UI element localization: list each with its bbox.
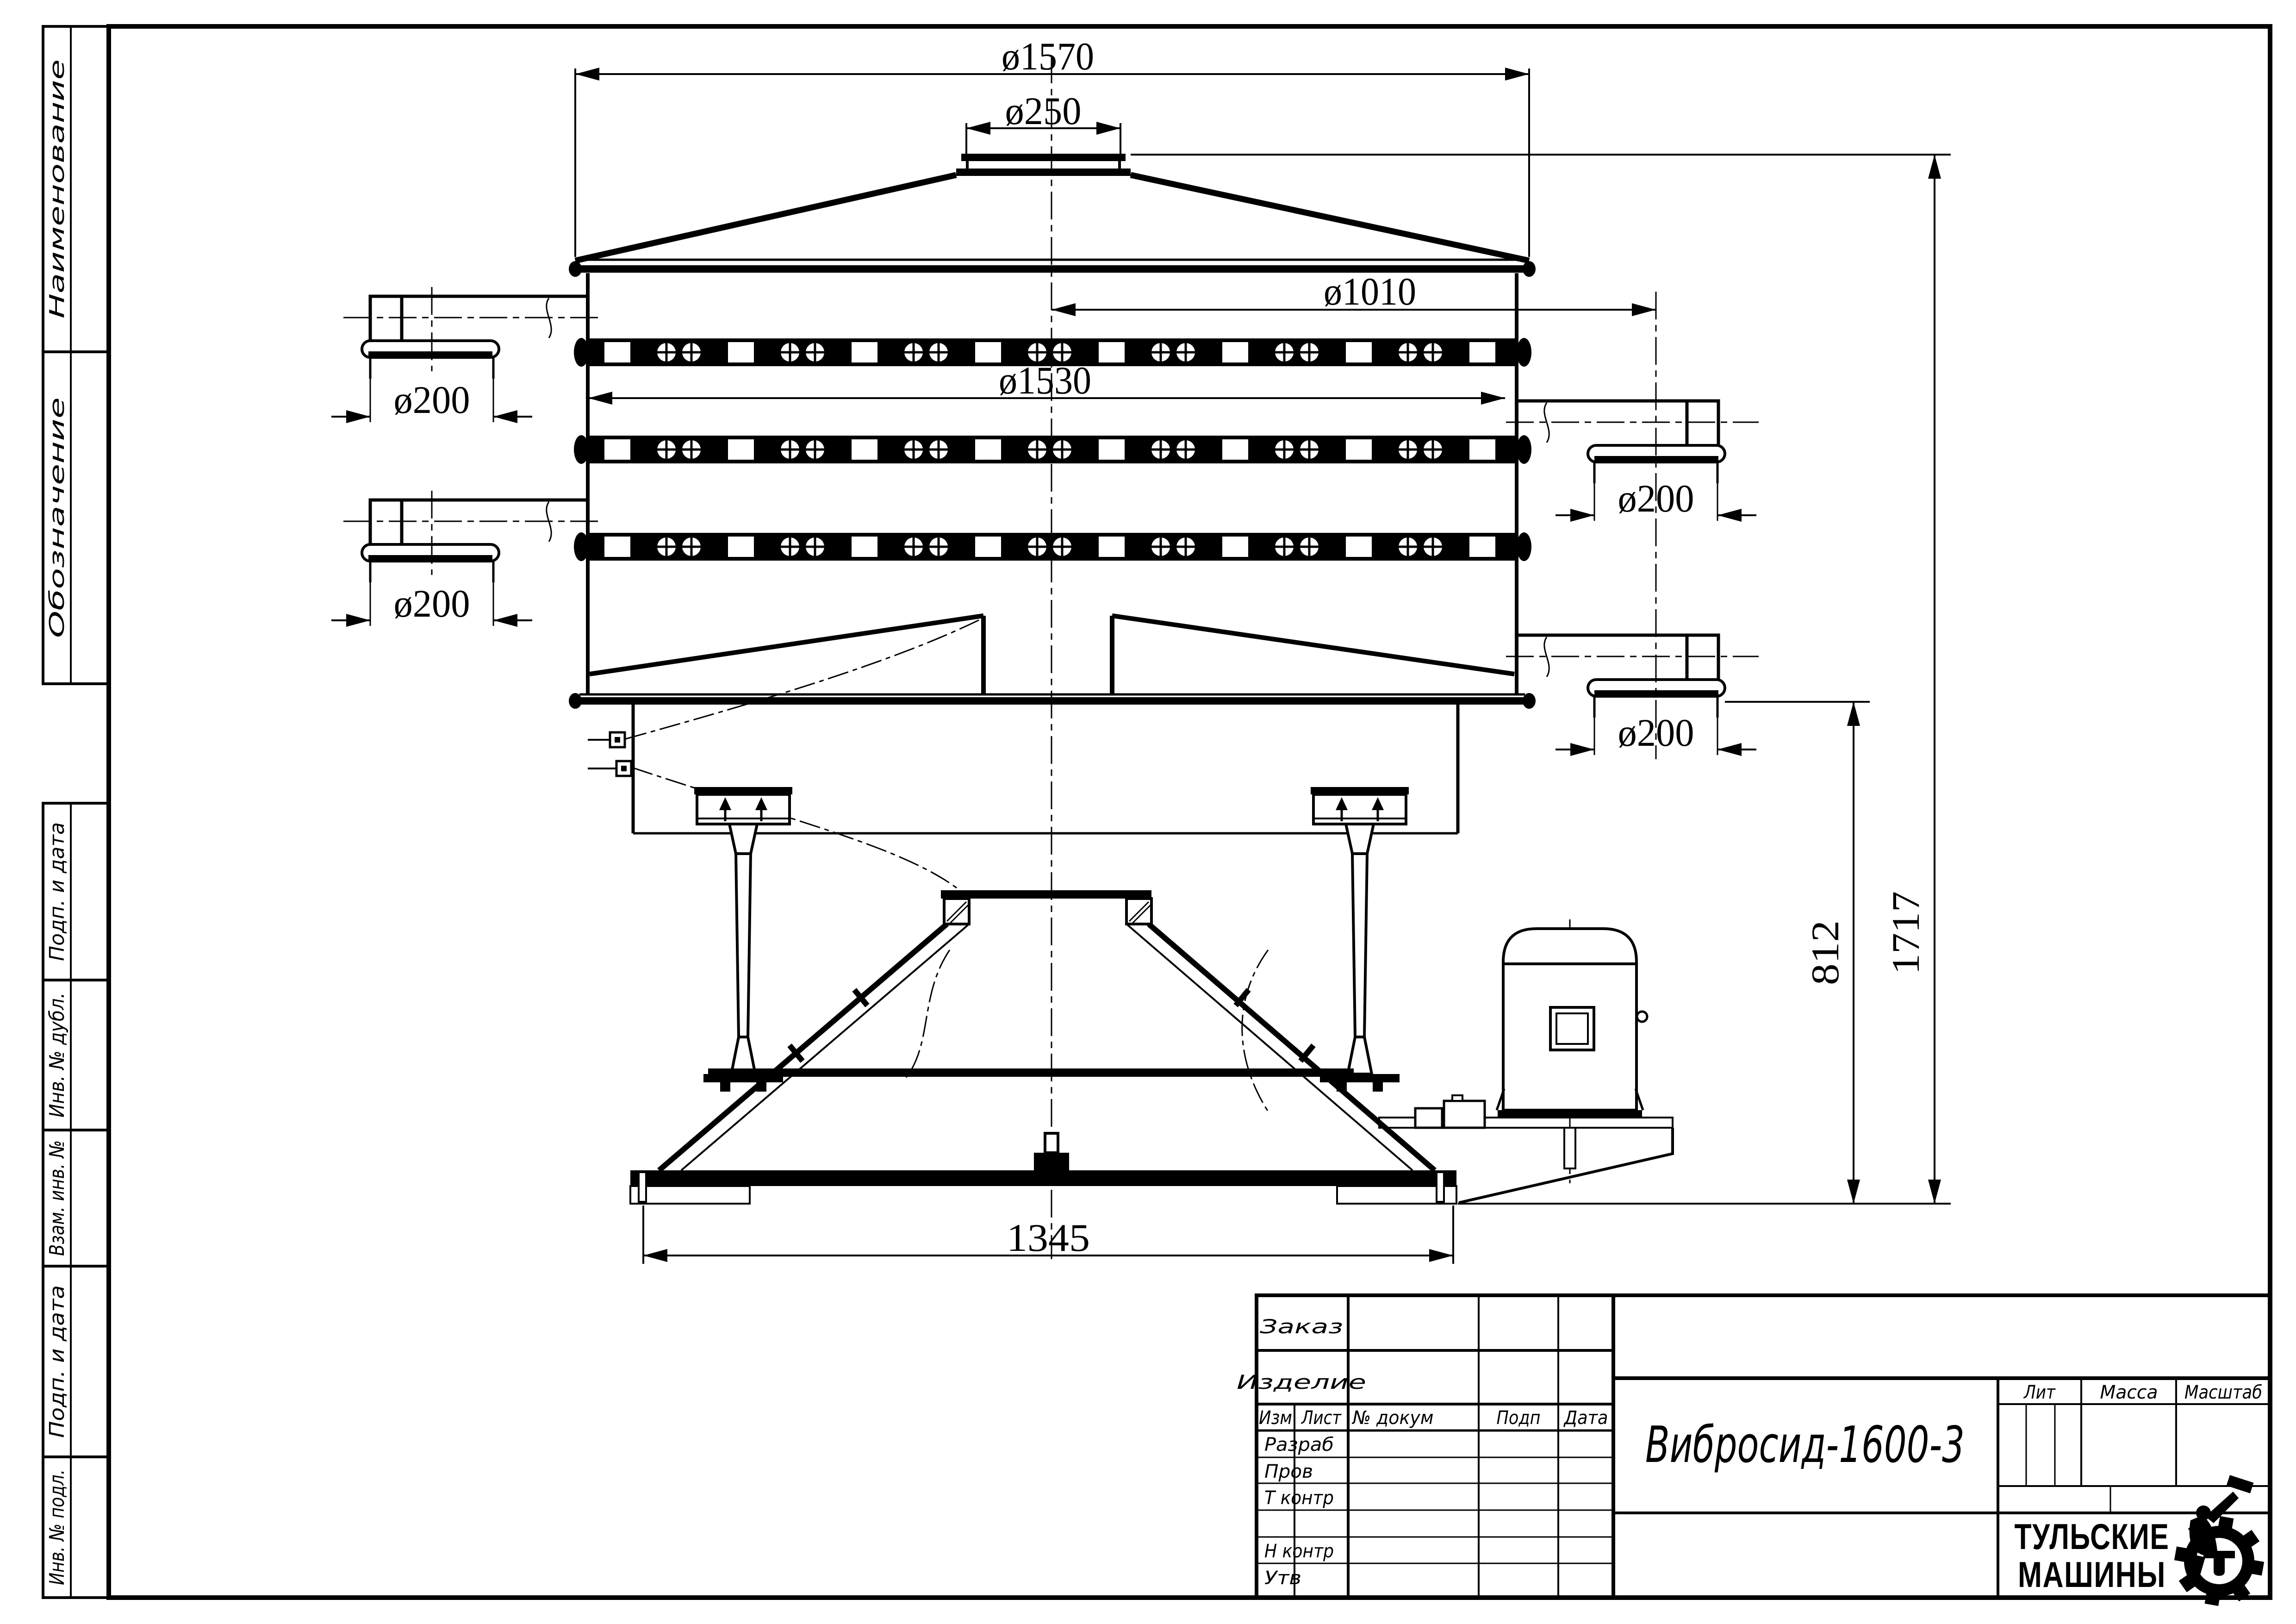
title-row-prov: Пров [1264,1461,1313,1482]
clamp-band-2 [574,435,1531,464]
title-order-label: Заказ [1260,1315,1343,1338]
dim-label-200-left-upper: ø200 [394,378,470,422]
base-ring [630,1170,1456,1204]
dimension-inlet-diameter: ø250 [966,89,1120,154]
inlet-neck [956,154,1131,176]
title-scale-label: Масштаб [2184,1382,2262,1403]
spring-leg-left [703,824,783,1092]
clamp-band-3 [574,532,1531,561]
title-designation: Вибросид-1600-3 [1645,1416,1965,1474]
dim-label-200-right-lower: ø200 [1618,711,1694,755]
dim-label-1570: ø1570 [1002,35,1094,78]
drawing-sheet: Наименование Обозначение Подп. и дата Ин… [0,0,2296,1624]
margin-label-name: Наименование [45,59,69,319]
dimension-base-width: 1345 [643,1206,1453,1264]
sheet-frame [109,26,2270,1598]
margin-label-vzam-inv: Взам. инв. № [45,1140,69,1256]
gear-emblem [2174,1475,2264,1606]
margin-label-inv-dubl: Инв. № дубл. [45,993,69,1118]
title-col-doc: № докум [1352,1407,1434,1429]
company-name-line2: МАШИНЫ [2018,1554,2166,1595]
drawing-canvas: Наименование Обозначение Подп. и дата Ин… [0,0,2296,1624]
company-name-line1: ТУЛЬСКИЕ [2015,1516,2170,1557]
title-row-razrab: Разраб [1264,1434,1334,1455]
dim-label-812: 812 [1804,920,1847,985]
spring-bracket-left [694,787,792,824]
dimension-deck-diameter: ø1010 [1052,270,1656,316]
machine-view [331,56,1759,1259]
margin-label-podp-data-2: Подп. и дата [45,1285,69,1438]
cross-bar [708,1068,1354,1077]
title-block: Заказ Изделие Изм Лист № докум Подп Дата… [1237,1295,2270,1606]
wall-fittings [588,732,631,776]
margin-label-designation: Обозначение [45,397,69,638]
margin-column-top: Наименование Обозначение [43,26,109,684]
company-logo: ТУЛЬСКИЕ МАШИНЫ [2015,1475,2265,1606]
title-product-label: Изделие [1237,1371,1366,1393]
title-row-nkontr: Н контр [1264,1541,1334,1562]
discharge-cone [659,890,1435,1170]
dim-label-1530: ø1530 [999,359,1091,402]
margin-label-podp-data-1: Подп. и дата [45,822,69,961]
title-col-data: Дата [1563,1407,1608,1429]
dimension-top-diameter: ø1570 [575,35,1529,257]
dimension-outlet-height: 812 [1725,702,1870,1204]
title-row-utv: Утв [1264,1568,1301,1589]
title-lit-label: Лит [2023,1382,2056,1403]
dim-label-1345: 1345 [1007,1216,1090,1260]
title-col-podp: Подп [1497,1407,1541,1429]
dim-label-1717: 1717 [1884,891,1928,974]
margin-label-inv-podl: Инв. № подл. [45,1469,69,1585]
dim-label-1010: ø1010 [1324,270,1416,313]
dim-label-250: ø250 [1005,89,1082,133]
spring-bracket-right [1311,787,1409,824]
title-row-tkontr: Т контр [1264,1487,1334,1509]
spring-leg-right [1320,824,1400,1092]
title-col-list: Лист [1300,1407,1342,1429]
title-mass-label: Масса [2100,1382,2158,1403]
dim-label-200-left-lower: ø200 [394,582,470,625]
margin-column-bottom: Подп. и дата Инв. № дубл. Взам. инв. № П… [43,803,109,1598]
title-col-izm: Изм [1259,1407,1292,1429]
dim-label-200-right-upper: ø200 [1618,477,1694,520]
